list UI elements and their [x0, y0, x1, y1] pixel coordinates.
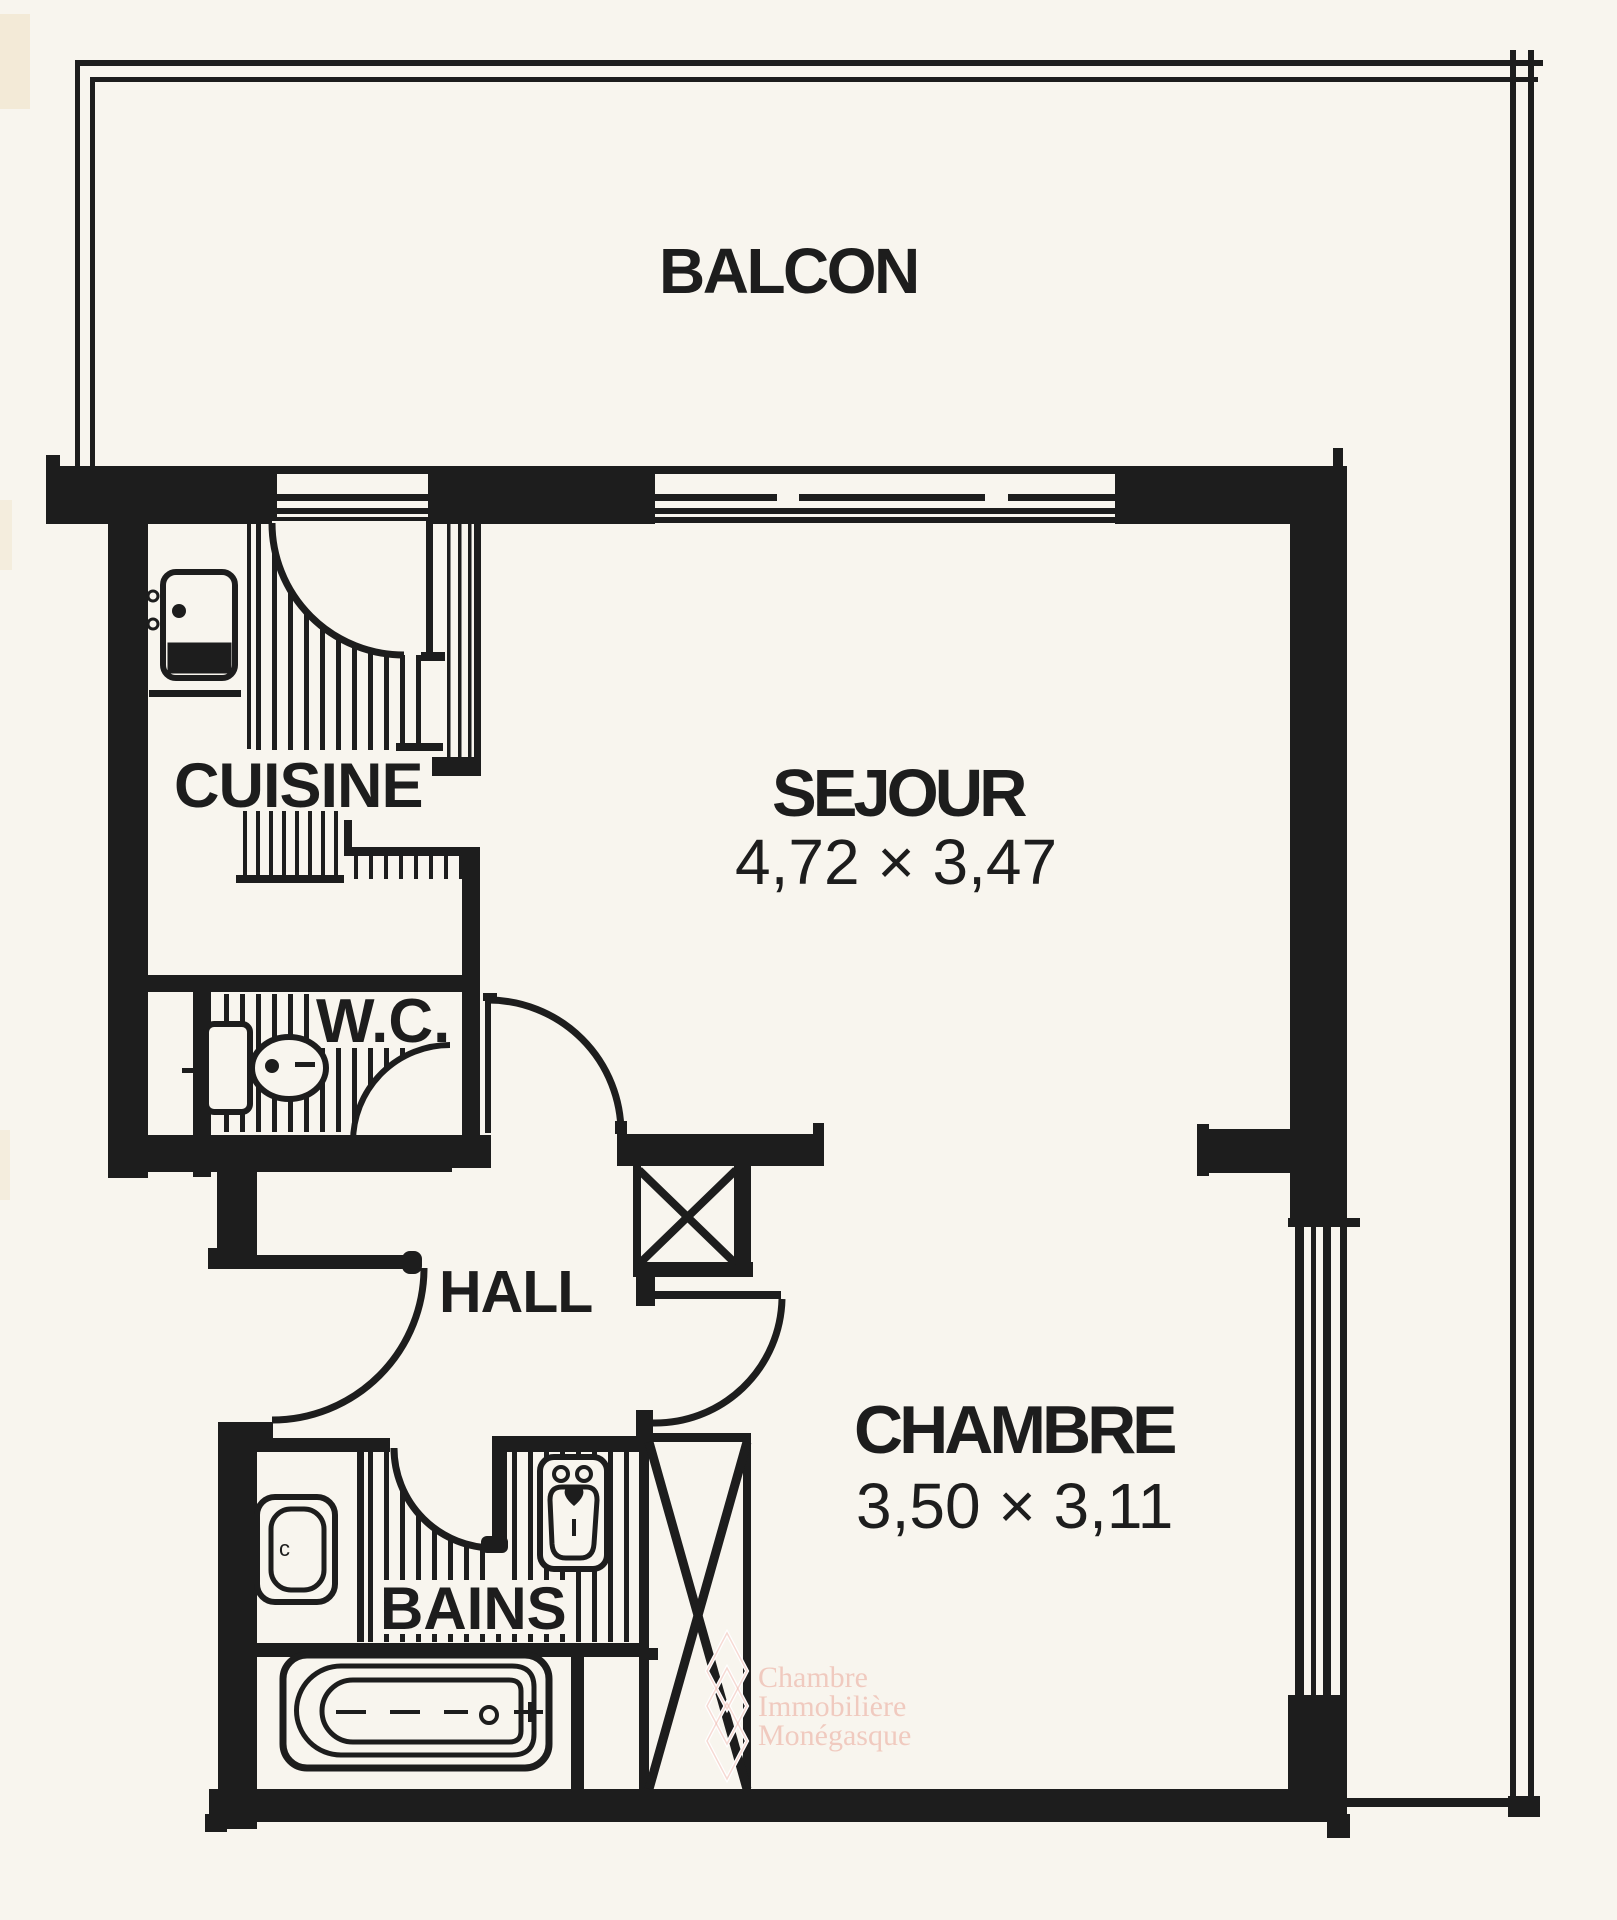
- svg-text:SEJOUR: SEJOUR: [772, 756, 1027, 831]
- svg-text:4,72 × 3,47: 4,72 × 3,47: [735, 826, 1057, 898]
- svg-text:c: c: [279, 1536, 290, 1561]
- svg-text:CUISINE: CUISINE: [174, 751, 423, 821]
- svg-text:Monégasque: Monégasque: [758, 1719, 911, 1752]
- svg-text:BAINS: BAINS: [380, 1575, 567, 1642]
- svg-text:3,50 × 3,11: 3,50 × 3,11: [856, 1470, 1173, 1542]
- svg-text:BALCON: BALCON: [659, 235, 918, 307]
- svg-text:CHAMBRE: CHAMBRE: [854, 1392, 1175, 1468]
- svg-text:HALL: HALL: [439, 1259, 592, 1325]
